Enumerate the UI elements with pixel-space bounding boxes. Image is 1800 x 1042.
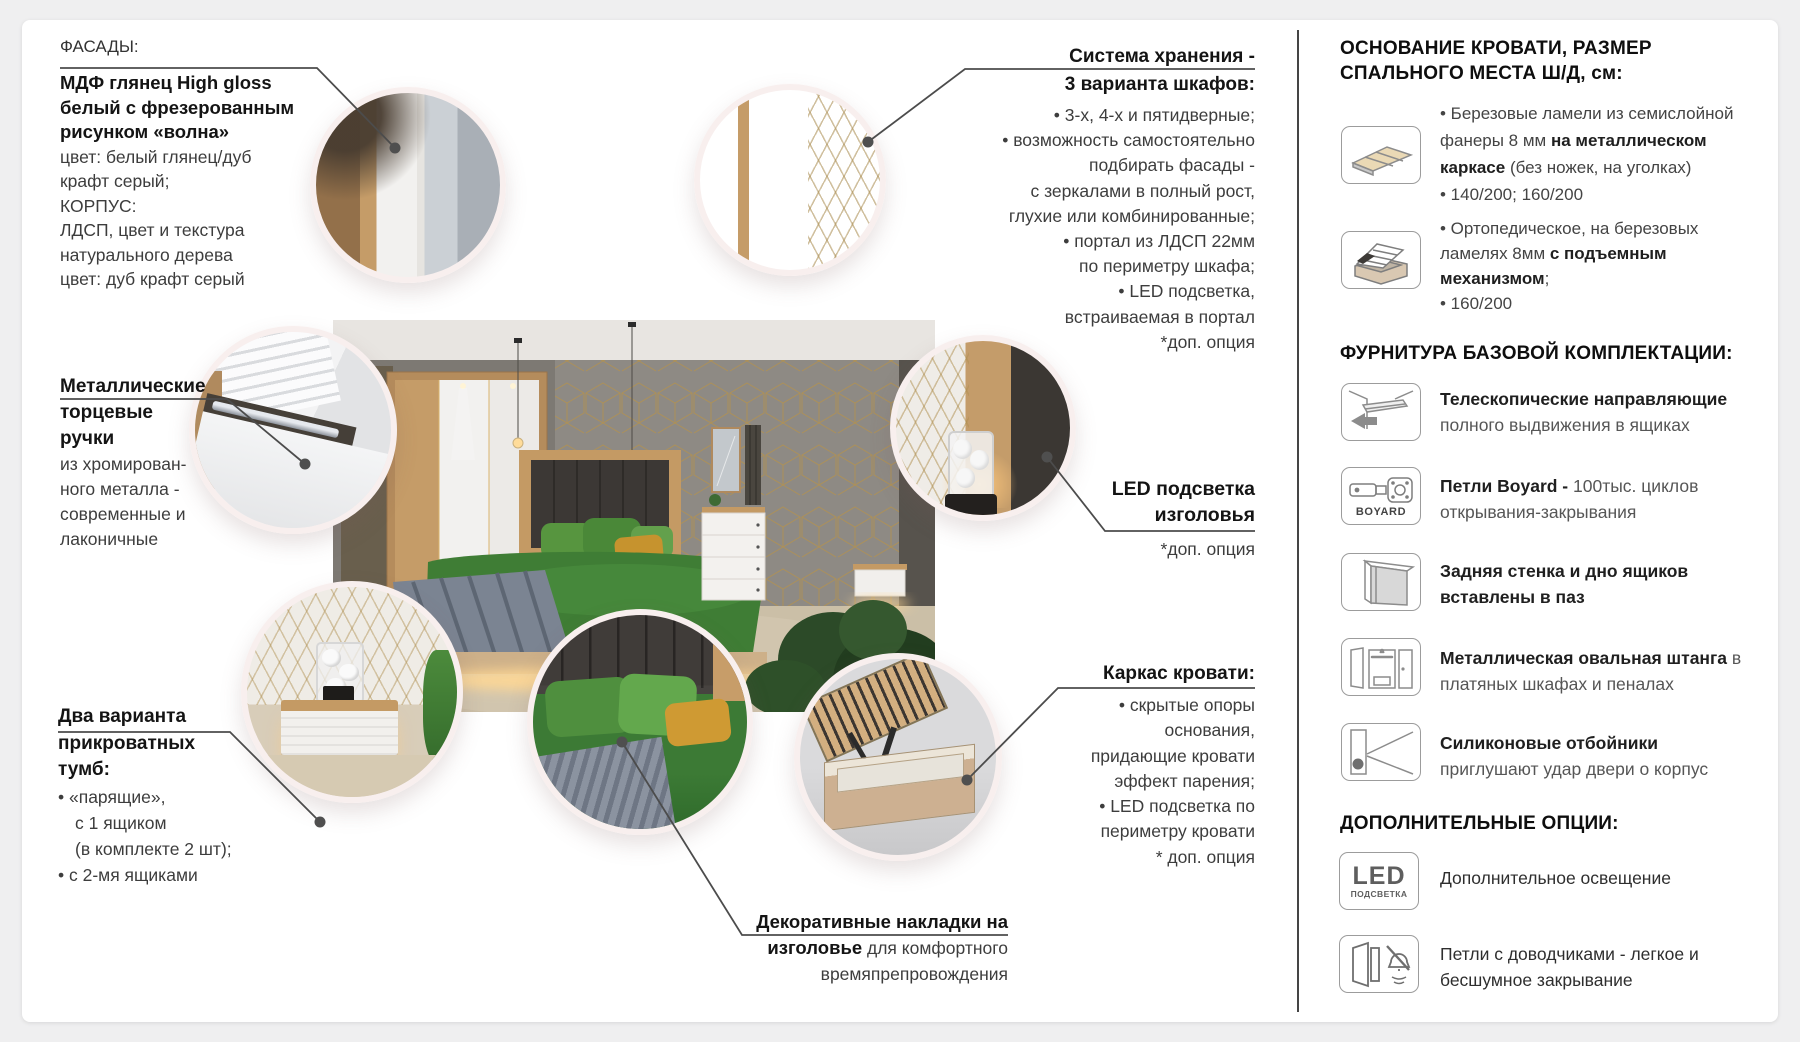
callout-circle-headboard-pads [527,609,753,835]
telescopic-rails-icon [1341,383,1421,441]
storage-text-line: • портал из ЛДСП 22мм [925,229,1255,254]
pattern-overlay [808,90,880,270]
text-line: • 140/200; 160/200 [1440,181,1775,208]
storage-box [824,744,975,831]
led-icon-subtext: ПОДСВЕТКА [1351,889,1408,899]
heading-line: ОСНОВАНИЕ КРОВАТИ, РАЗМЕР [1340,36,1652,61]
led-light-icon: LED ПОДСВЕТКА [1339,852,1419,910]
text-line: фанеры 8 мм на металлическом [1440,127,1775,154]
handles-title-line: Металлические [60,374,280,400]
sidebar-heading-options: ДОПОЛНИТЕЛЬНЫЕ ОПЦИИ: [1340,811,1619,836]
option-item-soft-close: Петли с доводчиками - легкое и бесшумное… [1440,941,1775,993]
nightstands-text-line: с 1 ящиком [58,810,288,836]
facades-title-line: белый с фрезерованным [60,96,312,121]
striped-throw [527,737,677,835]
storage-text-line: • 3-х, 4-х и пятидверные; [925,103,1255,128]
facades-callout: ФАСАДЫ: МДФ глянец High gloss белый с фр… [60,36,312,292]
led-headboard-note: *доп. опция [995,537,1255,562]
storage-title-line: Система хранения - [925,44,1255,70]
nightstands-text-line: • с 2-мя ящиками [58,862,288,888]
nightstands-callout: Два варианта прикроватных тумб: • «парящ… [58,704,288,888]
lift-bed-icon [1341,231,1421,289]
led-icon-text: LED [1353,864,1406,889]
hardware-item-rails: Телескопические направляющие полного выд… [1440,386,1775,438]
bed-frame-note: * доп. опция [995,845,1255,870]
storage-text-line: подбирать фасады - [925,153,1255,178]
text-line: • 160/200 [1440,291,1775,316]
handles-text-line: из хромирован- [60,452,280,477]
storage-text-line: по периметру шкафа; [925,254,1255,279]
bed-frame-text-line: эффект парения; [995,769,1255,794]
storage-title-line: 3 варианта шкафов: [925,72,1255,98]
hardware-item-bumpers: Силиконовые отбойники приглушают удар дв… [1440,730,1775,782]
facades-text-line: цвет: белый глянец/дуб [60,145,312,170]
text-line: каркасе (без ножек, на уголках) [1440,154,1775,181]
facades-text-line: цвет: дуб крафт серый [60,267,312,292]
text-line: приглушают удар двери о корпус [1440,756,1775,782]
storage-text-line: • LED подсветка, [925,279,1255,304]
handles-text-line: лаконичные [60,527,280,552]
floating-nightstand-closeup [281,700,399,755]
handles-title-line: ручки [60,426,280,452]
handles-text-line: ного металла - [60,477,280,502]
text-line: • Березовые ламели из семислойной [1440,100,1775,127]
hardware-item-rod: Металлическая овальная штанга в платяных… [1440,645,1775,697]
handles-callout: Металлические торцевые ручки из хромиров… [60,374,280,552]
text-line: Телескопические направляющие [1440,386,1775,412]
mustard-pillow [664,697,732,746]
bed-frame-text-line: периметру кровати [995,819,1255,844]
mirror [712,425,761,505]
storage-text-line: с зеркалами в полный рост, [925,179,1255,204]
handles-text-line: современные и [60,502,280,527]
text-line: • Ортопедическое, на березовых [1440,216,1775,241]
text-line: Дополнительное освещение [1440,865,1775,891]
facades-label: ФАСАДЫ: [60,36,312,58]
bed-frame-callout: Каркас кровати: • скрытые опоры основани… [995,661,1255,870]
facades-text-line: КОРПУС: [60,194,312,219]
storage-callout: Система хранения - 3 варианта шкафов: • … [925,44,1255,355]
flat-base-icon [1341,126,1421,184]
led-headboard-callout: LED подсветка изголовья *доп. опция [995,477,1255,562]
handles-title-line: торцевые [60,400,280,426]
bed-frame-text-line: • LED подсветка по [995,794,1255,819]
text-line: Петли Boyard - 100тыс. циклов [1440,473,1775,499]
soft-close-hinge-icon [1339,935,1419,993]
text-line: Силиконовые отбойники [1440,730,1775,756]
callout-circle-wardrobe-pattern [694,84,886,276]
nightstands-title-line: Два варианта [58,704,288,731]
silicone-bumper-icon [1341,723,1421,781]
decor-pads-callout: Декоративные накладки на изголовье для к… [718,909,1008,987]
callout-circle-wardrobe-fronts [310,87,506,283]
text-line: полного выдвижения в ящиках [1440,412,1775,438]
bed-base-item-1: • Березовые ламели из семислойной фанеры… [1440,100,1775,208]
boyard-hinge-icon: BOYARD [1341,467,1421,525]
bed-corner [423,650,457,763]
sidebar-heading-bed-base: ОСНОВАНИЕ КРОВАТИ, РАЗМЕР СПАЛЬНОГО МЕСТ… [1340,36,1652,86]
facades-text-line: натурального дерева [60,243,312,268]
text-line: открывания-закрывания [1440,499,1775,525]
heading-line: СПАЛЬНОГО МЕСТА Ш/Д, см: [1340,61,1652,86]
led-headboard-title-line: изголовья [995,503,1255,529]
storage-text-line: • возможность самостоятельно [925,128,1255,153]
storage-note: *доп. опция [925,330,1255,355]
bed-frame-title: Каркас кровати: [995,661,1255,687]
storage-text-line: встраиваемая в портал [925,305,1255,330]
text-line: вставлены в паз [1440,584,1775,610]
nightstands-title-line: прикроватных [58,731,288,758]
sidebar-divider [1297,30,1299,1012]
callout-circle-bed-frame [794,653,1002,861]
sidebar-heading-hardware: ФУРНИТУРА БАЗОВОЙ КОМПЛЕКТАЦИИ: [1340,341,1733,366]
facades-title-line: рисунком «волна» [60,120,312,145]
storage-text-line: глухие или комбинированные; [925,204,1255,229]
stage: ФАСАДЫ: МДФ глянец High gloss белый с фр… [0,0,1800,1042]
bed-base-item-2: • Ортопедическое, на березовых ламелях 8… [1440,216,1775,316]
hardware-item-groove: Задняя стенка и дно ящиков вставлены в п… [1440,558,1775,610]
oak-frame [713,615,747,701]
decor-pads-text-line: изголовье для комфортного [718,935,1008,961]
groove-panel-icon [1341,553,1421,611]
oak-strip [738,90,749,270]
bed-frame-text-line: придающие кровати [995,744,1255,769]
text-line: бесшумное закрывание [1440,967,1775,993]
bed-frame-text-line: основания, [995,718,1255,743]
text-line: Задняя стенка и дно ящиков [1440,558,1775,584]
facades-title-line: МДФ глянец High gloss [60,71,312,96]
boyard-label: BOYARD [1356,506,1406,518]
text-line: механизмом; [1440,266,1775,291]
text-line: Металлическая овальная штанга в [1440,645,1775,671]
text-line: ламелях 8мм с подъемным [1440,241,1775,266]
led-headboard-title-line: LED подсветка [995,477,1255,503]
text-line: платяных шкафах и пеналах [1440,671,1775,697]
facades-text-line: крафт серый; [60,169,312,194]
text-line: Петли с доводчиками - легкое и [1440,941,1775,967]
lamp-base [945,494,997,515]
bed-frame-text-line: • скрытые опоры [995,693,1255,718]
option-item-lighting: Дополнительное освещение [1440,865,1775,891]
dresser [702,494,765,600]
facades-text-line: ЛДСП, цвет и текстура [60,218,312,243]
nightstands-title-line: тумб: [58,757,288,784]
hardware-item-hinges: Петли Boyard - 100тыс. циклов открывания… [1440,473,1775,525]
decor-pads-text-line: времяпрепровождения [718,961,1008,987]
nightstands-text-line: • «парящие», [58,784,288,810]
decor-pads-title: Декоративные накладки на [718,909,1008,935]
oval-rod-icon [1341,638,1421,696]
nightstands-text-line: (в комплекте 2 шт); [58,836,288,862]
